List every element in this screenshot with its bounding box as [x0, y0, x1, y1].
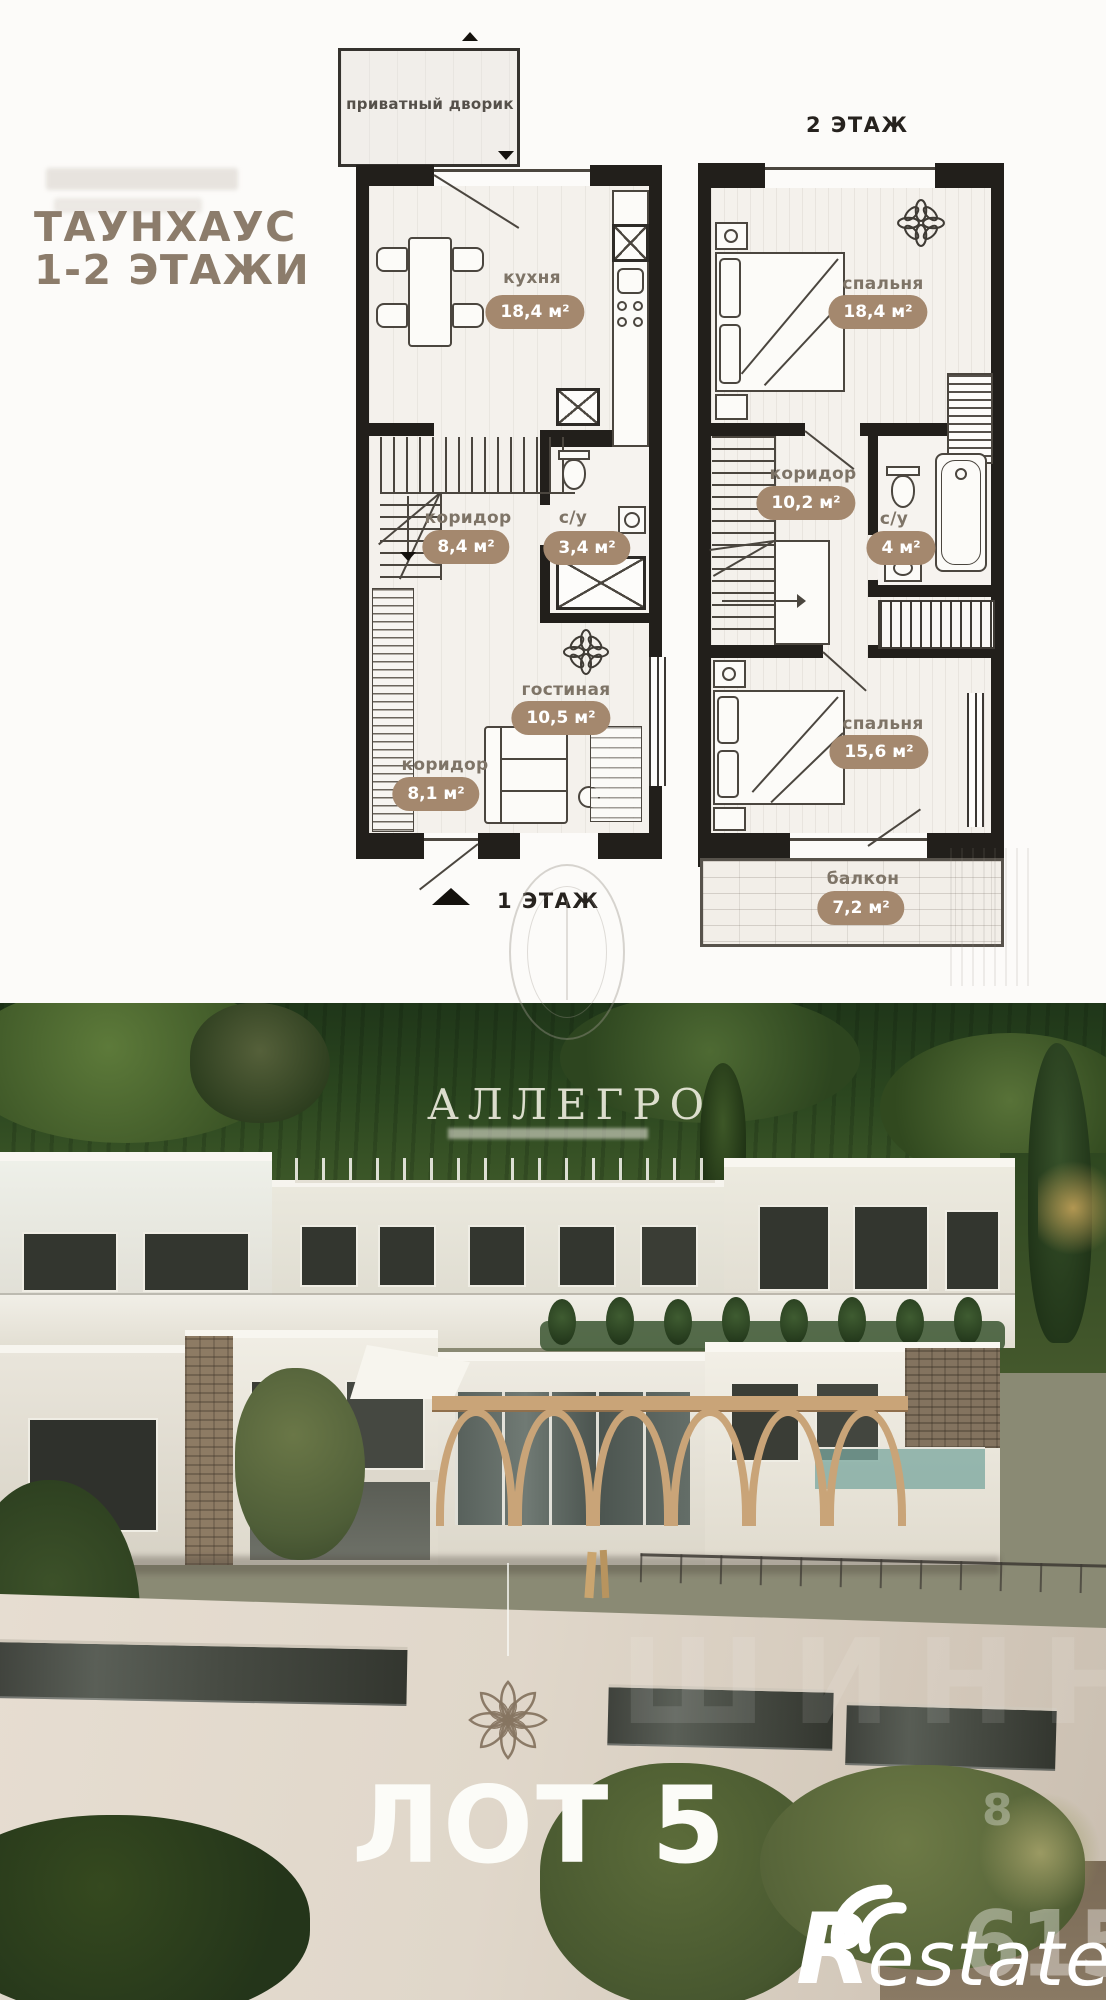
- ghost-watermark-line: [46, 168, 238, 190]
- stove-burner: [633, 301, 643, 311]
- logo-plumb-line: [507, 1563, 509, 1656]
- wall-segment: [649, 165, 662, 657]
- stone-pier: [185, 1336, 233, 1565]
- room-name: коридор: [770, 464, 857, 484]
- dry-grass-plant: [1038, 1153, 1106, 1263]
- room-name: балкон: [827, 869, 900, 889]
- chair: [376, 247, 408, 272]
- agency-watermark-subtitle: [448, 1128, 648, 1139]
- wall-segment: [356, 833, 424, 859]
- wall-segment: [868, 436, 878, 535]
- wall-segment: [698, 833, 790, 860]
- stair-arrow-stem: [722, 600, 798, 602]
- room-area-badge: 15,6 м²: [829, 735, 928, 769]
- room-name: коридор: [425, 508, 512, 528]
- chair: [452, 247, 484, 272]
- stove-burner: [633, 317, 643, 327]
- hedge-bush: [664, 1299, 692, 1345]
- pillow: [719, 324, 741, 384]
- roof-pergola-lines: [295, 1158, 715, 1183]
- ghost-number-small: 8: [982, 1785, 1013, 1836]
- dimension-arrow-down-icon: [498, 151, 514, 160]
- building-window: [300, 1225, 358, 1287]
- building-window: [558, 1225, 616, 1287]
- wall-segment: [590, 165, 662, 186]
- wardrobe: [947, 373, 993, 464]
- wall-segment: [478, 833, 520, 859]
- pillow: [717, 696, 739, 744]
- building-window: [22, 1232, 118, 1292]
- stair-arrow-icon: [400, 552, 416, 561]
- wall-segment: [698, 163, 765, 188]
- bath-sink-basin: [624, 512, 640, 528]
- wall-segment: [356, 165, 369, 859]
- wall-segment: [698, 163, 711, 867]
- window-line: [434, 169, 590, 172]
- room-name: с/у: [559, 508, 587, 528]
- room-area-badge: 10,5 м²: [511, 701, 610, 735]
- sofa-cushion-line: [502, 758, 566, 760]
- stairs: [712, 436, 776, 640]
- wall-segment: [698, 645, 823, 658]
- hedge-bush: [722, 1297, 750, 1345]
- canopy-blob: [190, 1003, 330, 1123]
- lamp: [724, 229, 738, 243]
- building-window: [945, 1210, 1000, 1291]
- hedge-bush: [548, 1299, 576, 1345]
- plant-icon: [896, 198, 946, 248]
- title-line-1: ТАУНХАУС: [34, 206, 310, 249]
- photo-panel: ШИНН АЛЛЕГРО ·МИНДАЛЬ· РТАЛ ЖИЛ: [0, 1003, 1106, 2000]
- wall-segment: [540, 613, 662, 623]
- building-window: [640, 1225, 698, 1287]
- hedge-bush: [954, 1297, 982, 1345]
- restate-logo-swoosh-icon: [823, 1878, 926, 1958]
- chair: [452, 303, 484, 328]
- page-title: ТАУНХАУС 1-2 ЭТАЖИ: [34, 206, 310, 292]
- room-area-badge: 3,4 м²: [543, 531, 630, 565]
- room-area-badge: 18,4 м²: [828, 295, 927, 329]
- bathtub-drain: [955, 468, 967, 480]
- door-sill: [790, 838, 927, 841]
- lot-label: ЛОТ 5: [352, 1773, 728, 1879]
- building-window: [143, 1232, 250, 1292]
- sofa: [484, 726, 568, 824]
- room-name: гостиная: [522, 680, 611, 700]
- dining-table: [408, 237, 452, 347]
- room-name: спальня: [842, 274, 923, 294]
- lamp: [722, 667, 736, 681]
- stove-burner: [617, 301, 627, 311]
- window: [649, 657, 666, 786]
- floor1-triangle-icon: [432, 888, 470, 905]
- building-window: [378, 1225, 436, 1287]
- pergola-beam: [432, 1396, 908, 1410]
- real-estate-listing-image: ТАУНХАУС 1-2 ЭТАЖИ приватный дворик: [0, 0, 1106, 2000]
- room-name: спальня: [842, 714, 923, 734]
- pillow: [717, 750, 739, 798]
- building-window: [853, 1205, 929, 1291]
- kitchen-sink: [617, 268, 644, 294]
- title-line-2: 1-2 ЭТАЖИ: [34, 249, 310, 292]
- olive-tree: [235, 1368, 365, 1560]
- wall-window-strip: [0, 1639, 408, 1706]
- hedge-bush: [838, 1297, 866, 1345]
- floor2-label: 2 ЭТАЖ: [806, 113, 909, 137]
- pillow: [719, 258, 741, 318]
- toilet-bowl: [562, 459, 586, 490]
- stair-landing: [774, 540, 830, 645]
- room-area-badge: 8,1 м²: [392, 777, 479, 811]
- nightstand: [715, 394, 748, 420]
- window: [967, 693, 984, 827]
- floorplan-panel: ТАУНХАУС 1-2 ЭТАЖИ приватный дворик: [0, 0, 1106, 1003]
- room-name: с/у: [880, 509, 908, 529]
- hedge-bush: [896, 1299, 924, 1345]
- room-area-badge: 10,2 м²: [756, 486, 855, 520]
- building-window: [758, 1205, 830, 1291]
- room-area-badge: 7,2 м²: [817, 891, 904, 925]
- dimension-arrow-up-icon: [462, 32, 478, 41]
- agency-emblem-detail: [566, 900, 568, 1000]
- room-area-badge: 4 м²: [866, 531, 935, 565]
- ghost-comb-pattern: [950, 848, 1038, 986]
- room-name: коридор: [402, 755, 489, 775]
- wall-segment: [356, 165, 434, 186]
- wall-segment: [991, 163, 1004, 867]
- chair: [376, 303, 408, 328]
- hedge-bush: [606, 1297, 634, 1345]
- building-window: [468, 1225, 526, 1287]
- ghost-watermark-text: ШИНН: [620, 1613, 1106, 1751]
- sofa-cushion-line: [502, 790, 566, 792]
- stone-wall-section: [905, 1348, 1000, 1448]
- wall-segment: [356, 423, 434, 436]
- hedge-bush: [780, 1299, 808, 1345]
- pergola-pole: [584, 1552, 596, 1599]
- stair-arrow-icon: [797, 594, 806, 608]
- stair-arrow-stem: [407, 496, 409, 554]
- courtyard-label: приватный дворик: [346, 95, 514, 113]
- kitchen-cabinet: [612, 224, 649, 262]
- stairs: [380, 437, 575, 494]
- wall-segment: [868, 585, 1004, 597]
- room-name: кухня: [503, 268, 561, 288]
- wall-segment: [598, 833, 662, 859]
- room-area-badge: 8,4 м²: [422, 530, 509, 564]
- door-swing: [419, 843, 479, 890]
- mindal-flower-icon: [462, 1674, 554, 1766]
- toilet-bowl: [891, 475, 915, 508]
- stove-burner: [617, 317, 627, 327]
- wall-segment: [935, 163, 1004, 188]
- sofa-back-line: [500, 728, 502, 822]
- door-sill: [424, 838, 478, 841]
- agency-watermark: АЛЛЕГРО: [427, 1080, 713, 1129]
- window-line: [765, 167, 935, 170]
- wardrobe-hangers: [878, 600, 995, 649]
- wall-segment: [698, 423, 805, 436]
- rug: [590, 726, 642, 822]
- roof-railing: [640, 1553, 1106, 1593]
- nightstand: [713, 807, 746, 831]
- room-area-badge: 18,4 м²: [485, 295, 584, 329]
- washing-machine: [556, 388, 600, 426]
- plant-icon: [562, 628, 610, 676]
